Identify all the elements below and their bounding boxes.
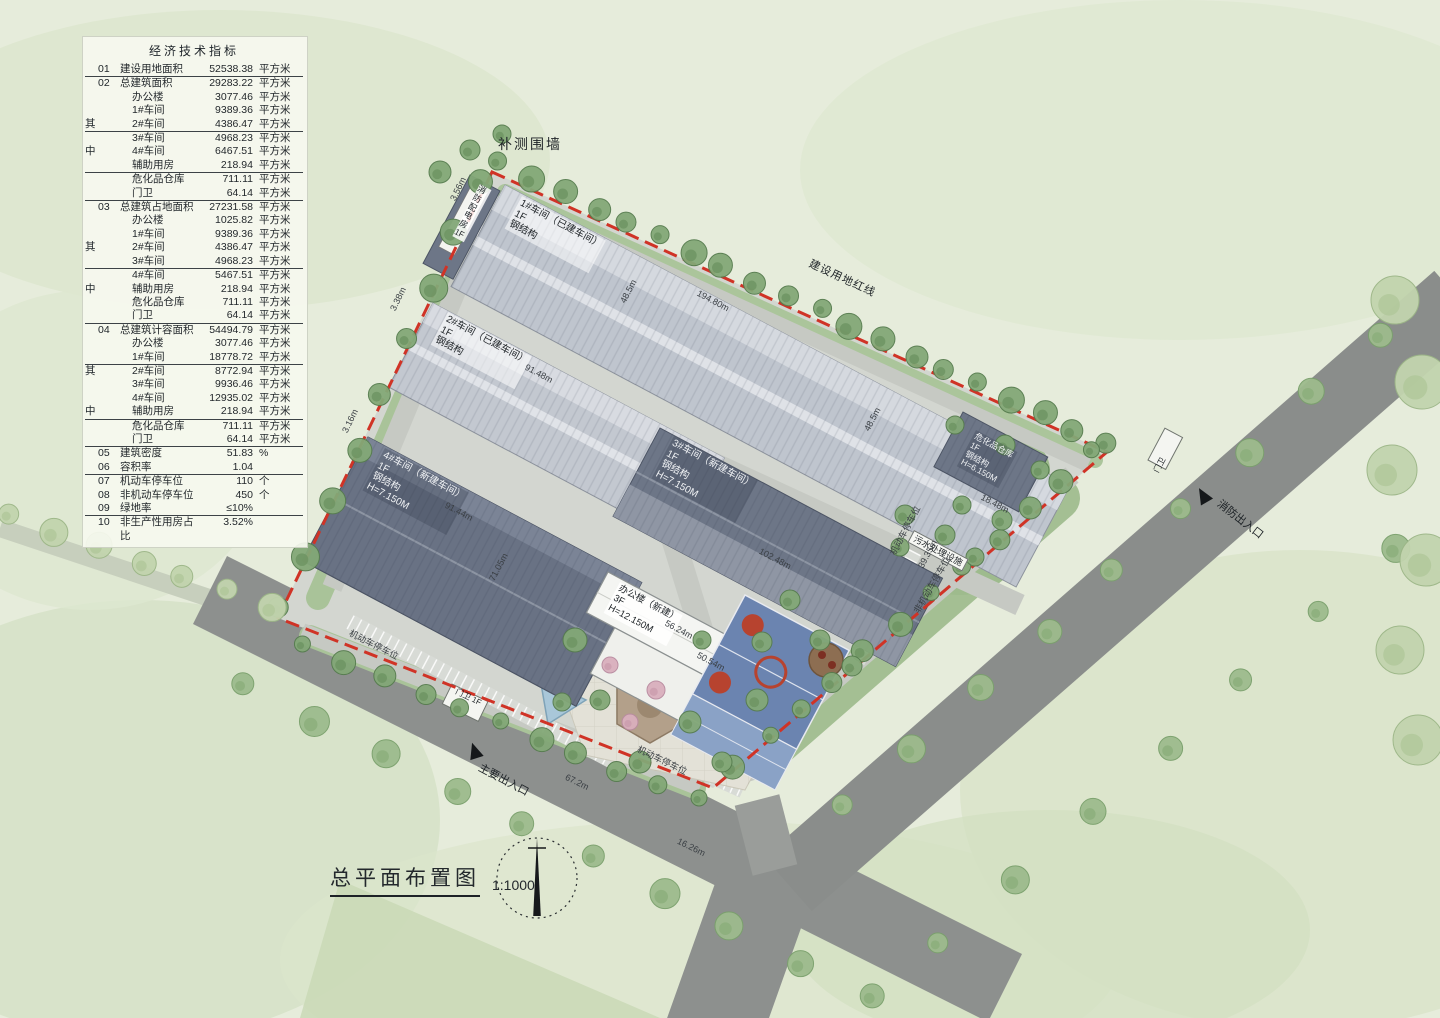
indicator-cell-val: 218.94	[197, 405, 259, 418]
indicator-cell-lab: 4#车间	[119, 145, 197, 158]
tree-texture	[1023, 505, 1033, 515]
indicator-cell-val: 51.83	[197, 447, 259, 460]
tree-texture	[586, 853, 596, 863]
indicator-row: 1#车间9389.36平方米	[85, 104, 303, 117]
indicator-row: 其2#车间4386.47平方米	[85, 118, 303, 132]
tree-texture	[813, 638, 822, 647]
tree-texture	[936, 367, 945, 376]
indicator-row: 02总建筑面积29283.22平方米	[85, 77, 303, 90]
tree-texture	[593, 698, 602, 707]
tree-texture	[712, 262, 723, 273]
tree-texture	[765, 733, 772, 740]
indicator-cell-val: 711.11	[197, 420, 259, 433]
indicator-cell-val: 12935.02	[197, 392, 259, 405]
indicator-cell-val: 4386.47	[197, 118, 259, 131]
tree-texture	[419, 692, 428, 701]
indicator-row: 3#车间4968.23平方米	[85, 255, 303, 269]
indicator-cell-lab: 辅助用房	[119, 283, 197, 296]
tree-texture	[556, 700, 564, 708]
indicator-cell-lab: 2#车间	[119, 118, 197, 131]
indicator-cell-lab: 3#车间	[119, 255, 197, 268]
tree-texture	[969, 555, 977, 563]
indicator-cell-no: 02	[98, 77, 119, 90]
indicator-cell-lab: 办公楼	[119, 91, 197, 104]
tree-texture	[1401, 734, 1424, 757]
indicator-row: 10非生产性用房占比3.52%	[85, 516, 303, 543]
indicator-row: 4#车间5467.51平方米	[85, 269, 303, 282]
tree-texture	[931, 940, 940, 949]
tree-texture	[1240, 449, 1253, 462]
indicator-cell-no: 10	[98, 516, 119, 529]
indicator-row: 06容积率1.04	[85, 461, 303, 475]
indicator-cell-no: 03	[98, 201, 119, 214]
tree-texture	[1006, 876, 1019, 889]
indicator-row: 1#车间18778.72平方米	[85, 351, 303, 365]
indicator-cell-lab: 1#车间	[119, 351, 197, 364]
tree-texture	[1086, 448, 1093, 455]
indicator-row: 04总建筑计容面积54494.79平方米	[85, 324, 303, 337]
indicator-cell-val: 64.14	[197, 433, 259, 446]
tree-texture	[592, 207, 602, 217]
indicator-cell-lab: 2#车间	[119, 365, 197, 378]
tree-texture	[652, 782, 660, 790]
tree-texture	[892, 621, 903, 632]
tree-texture	[971, 380, 979, 388]
tree-texture	[747, 281, 757, 291]
indicator-cell-no: 06	[98, 461, 119, 474]
tree-texture	[840, 323, 852, 335]
tree-texture	[304, 718, 318, 732]
indicator-cell-val: 64.14	[197, 187, 259, 200]
tree-texture	[1378, 294, 1400, 316]
indicator-row: 门卫64.14平方米	[85, 187, 303, 201]
indicator-row: 危化品仓库711.11平方米	[85, 420, 303, 433]
tree-texture	[2, 512, 11, 521]
indicator-cell-lab: 辅助用房	[119, 159, 197, 172]
tree-texture	[522, 176, 534, 188]
indicator-cell-lab: 总建筑计容面积	[119, 324, 197, 337]
indicator-cell-val: 64.14	[197, 309, 259, 322]
indicator-cell-lab: 非生产性用房占比	[119, 516, 197, 543]
indicator-cell-unit: 平方米	[259, 337, 303, 350]
tree-texture	[715, 760, 724, 769]
tree-texture	[1311, 609, 1320, 618]
indicator-cell-unit: 平方米	[259, 378, 303, 391]
indicator-cell-val: 4386.47	[197, 241, 259, 254]
tree-texture	[1104, 567, 1114, 577]
indicator-table-rows: 01建设用地面积52538.38平方米02总建筑面积29283.22平方米办公楼…	[85, 63, 303, 543]
indicator-cell-unit: 平方米	[259, 214, 303, 227]
indicator-cell-val: 4968.23	[197, 255, 259, 268]
indicator-cell-val: 218.94	[197, 159, 259, 172]
tree-texture	[424, 285, 437, 298]
tree-texture	[372, 392, 382, 402]
indicator-cell-unit: 平方米	[259, 351, 303, 364]
indicator-row: 中辅助用房218.94平方米	[85, 283, 303, 296]
indicator-cell-grp: 其	[85, 241, 98, 254]
indicator-cell-unit: 平方米	[259, 433, 303, 446]
indicator-row: 办公楼3077.46平方米	[85, 91, 303, 104]
indicator-cell-grp: 其	[85, 365, 98, 378]
indicator-row: 3#车间9936.46平方米	[85, 378, 303, 391]
indicator-cell-lab: 危化品仓库	[119, 420, 197, 433]
indicator-cell-val: 4968.23	[197, 132, 259, 145]
tree-texture	[1162, 745, 1173, 756]
tree-texture	[749, 697, 759, 707]
indicator-cell-lab: 门卫	[119, 309, 197, 322]
indicator-row: 门卫64.14平方米	[85, 309, 303, 323]
indicator-cell-lab: 3#车间	[119, 132, 197, 145]
tree-texture	[624, 720, 631, 727]
indicator-cell-unit: 平方米	[259, 255, 303, 268]
indicator-cell-unit: 平方米	[259, 296, 303, 309]
drawing-title-block: 总平面布置图 1:1000	[330, 862, 535, 897]
tree-texture	[1383, 644, 1405, 666]
drawing-scale: 1:1000	[492, 877, 535, 897]
tree-texture	[568, 750, 578, 760]
indicator-cell-unit: 平方米	[259, 63, 303, 76]
tree-texture	[604, 663, 611, 670]
indicator-cell-no: 01	[98, 63, 119, 76]
indicator-row: 中4#车间6467.51平方米	[85, 145, 303, 158]
indicator-cell-unit: 平方米	[259, 420, 303, 433]
indicator-cell-unit: 平方米	[259, 187, 303, 200]
indicator-cell-no: 08	[98, 489, 119, 502]
indicator-row: 办公楼3077.46平方米	[85, 337, 303, 350]
indicator-row: 4#车间12935.02平方米	[85, 392, 303, 405]
indicator-cell-val: 711.11	[197, 173, 259, 186]
indicator-row: 危化品仓库711.11平方米	[85, 173, 303, 186]
indicator-row: 其2#车间4386.47平方米	[85, 241, 303, 254]
tree-texture	[654, 890, 668, 904]
indicator-cell-lab: 门卫	[119, 187, 197, 200]
tree-texture	[993, 537, 1002, 546]
tree-texture	[174, 574, 184, 584]
tree-texture	[432, 169, 442, 179]
indicator-cell-grp: 其	[85, 118, 98, 131]
tree-texture	[654, 232, 662, 240]
tree-texture	[1099, 441, 1108, 450]
indicator-cell-no: 09	[98, 502, 119, 515]
indicator-cell-val: 6467.51	[197, 145, 259, 158]
indicator-row: 危化品仓库711.11平方米	[85, 296, 303, 309]
drawing-title: 总平面布置图	[330, 862, 480, 897]
indicator-cell-lab: 4#车间	[119, 269, 197, 282]
indicator-cell-no: 04	[98, 324, 119, 337]
tree-texture	[1002, 397, 1014, 409]
tree-texture	[449, 788, 461, 800]
tree-texture	[795, 707, 803, 715]
indicator-cell-val: 9936.46	[197, 378, 259, 391]
tree-texture	[495, 719, 502, 726]
tree-texture	[463, 148, 472, 157]
indicator-cell-unit: 平方米	[259, 241, 303, 254]
tree-texture	[632, 759, 642, 769]
indicator-row: 门卫64.14平方米	[85, 433, 303, 447]
tree-texture	[845, 664, 854, 673]
indicator-cell-lab: 2#车间	[119, 241, 197, 254]
indicator-cell-lab: 容积率	[119, 461, 197, 474]
tree-texture	[567, 637, 578, 648]
tree-texture	[682, 719, 692, 729]
indicator-cell-grp: 中	[85, 405, 98, 418]
indicator-cell-unit: 个	[259, 475, 303, 488]
tree-texture	[1372, 332, 1383, 343]
indicator-cell-lab: 总建筑占地面积	[119, 201, 197, 214]
tree-texture	[619, 220, 628, 229]
indicator-cell-unit: 平方米	[259, 145, 303, 158]
indicator-row: 07机动车停车位110个	[85, 475, 303, 488]
indicator-cell-unit: 平方米	[259, 173, 303, 186]
tree-texture	[1037, 410, 1048, 421]
tree-texture	[1233, 677, 1243, 687]
indicator-cell-unit: 平方米	[259, 324, 303, 337]
indicator-cell-unit: 平方米	[259, 132, 303, 145]
indicator-cell-unit: 平方米	[259, 392, 303, 405]
indicator-cell-val: 110	[197, 475, 259, 488]
indicator-cell-lab: 非机动车停车位	[119, 489, 197, 502]
tree-texture	[693, 796, 700, 803]
tree-texture	[949, 423, 957, 431]
indicator-cell-val: 52538.38	[197, 63, 259, 76]
tree-texture	[220, 587, 229, 596]
tree-texture	[1041, 628, 1052, 639]
indicator-cell-lab: 3#车间	[119, 378, 197, 391]
tree-texture	[44, 529, 57, 542]
indicator-cell-unit: 平方米	[259, 104, 303, 117]
indicator-cell-val: 711.11	[197, 296, 259, 309]
indicator-row: 办公楼1025.82平方米	[85, 214, 303, 227]
tree-texture	[696, 638, 704, 646]
tree-texture	[902, 745, 915, 758]
tree-texture	[1084, 808, 1096, 820]
indicator-cell-val: 218.94	[197, 283, 259, 296]
indicator-cell-lab: 机动车停车位	[119, 475, 197, 488]
indicator-cell-lab: 1#车间	[119, 228, 197, 241]
indicator-row: 08非机动车停车位450个	[85, 489, 303, 502]
indicator-cell-lab: 危化品仓库	[119, 173, 197, 186]
tree-texture	[864, 993, 875, 1004]
tree-texture	[1174, 506, 1183, 515]
tree-texture	[324, 498, 336, 510]
indicator-cell-unit: %	[259, 447, 303, 460]
indicator-cell-unit: 平方米	[259, 118, 303, 131]
tree-texture	[296, 553, 309, 566]
indicator-cell-lab: 门卫	[119, 433, 197, 446]
tree-texture	[1375, 464, 1398, 487]
indicator-cell-val: 27231.58	[197, 201, 259, 214]
indicator-cell-lab: 办公楼	[119, 214, 197, 227]
indicator-table: 经济技术指标 01建设用地面积52538.38平方米02总建筑面积29283.2…	[82, 36, 308, 548]
indicator-cell-no: 05	[98, 447, 119, 460]
indicator-cell-unit: 平方米	[259, 365, 303, 378]
tree-texture	[995, 518, 1004, 527]
tree-texture	[262, 604, 275, 617]
indicator-cell-val: 54494.79	[197, 324, 259, 337]
indicator-row: 中辅助用房218.94平方米	[85, 405, 303, 419]
tree-texture	[351, 447, 362, 458]
tree-texture	[1053, 479, 1064, 490]
indicator-cell-unit: 平方米	[259, 269, 303, 282]
indicator-cell-val: 3077.46	[197, 91, 259, 104]
tree-texture	[782, 293, 791, 302]
indicator-cell-lab: 4#车间	[119, 392, 197, 405]
indicator-row: 其2#车间8772.94平方米	[85, 365, 303, 378]
indicator-cell-lab: 总建筑面积	[119, 77, 197, 90]
tree-texture	[791, 960, 803, 972]
tree-texture	[719, 922, 732, 935]
tree-texture	[491, 159, 499, 167]
tree-texture	[377, 673, 387, 683]
tree-texture	[235, 681, 245, 691]
indicator-cell-unit: 平方米	[259, 309, 303, 322]
indicator-row: 3#车间4968.23平方米	[85, 132, 303, 145]
indicator-cell-val: 450	[197, 489, 259, 502]
indicator-cell-unit: 个	[259, 489, 303, 502]
tree-texture	[956, 503, 964, 511]
indicator-cell-unit: 平方米	[259, 159, 303, 172]
indicator-cell-val: 3.52%	[197, 516, 259, 529]
tree-texture	[685, 249, 697, 261]
indicator-cell-val: 9389.36	[197, 104, 259, 117]
tree-texture	[1064, 428, 1074, 438]
wall-label: 补测围墙	[498, 136, 562, 152]
indicator-cell-lab: 1#车间	[119, 104, 197, 117]
indicator-cell-unit: 平方米	[259, 283, 303, 296]
indicator-cell-lab: 建设用地面积	[119, 63, 197, 76]
tree-texture	[1302, 388, 1314, 400]
indicator-cell-unit: 平方米	[259, 91, 303, 104]
indicator-cell-unit: 平方米	[259, 405, 303, 418]
tree-texture	[1034, 468, 1042, 476]
tree-texture	[557, 189, 568, 200]
indicator-cell-lab: 建筑密度	[119, 447, 197, 460]
tree-texture	[816, 306, 824, 314]
indicator-cell-lab: 绿地率	[119, 502, 197, 515]
indicator-cell-grp: 中	[85, 145, 98, 158]
tree-texture	[400, 336, 409, 345]
indicator-cell-lab: 辅助用房	[119, 405, 197, 418]
tree-texture	[610, 769, 619, 778]
tree-texture	[136, 561, 147, 572]
tree-texture	[938, 533, 947, 542]
indicator-cell-val: 29283.22	[197, 77, 259, 90]
indicator-cell-val: 9389.36	[197, 228, 259, 241]
road-site-access	[757, 800, 775, 870]
indicator-row: 辅助用房218.94平方米	[85, 159, 303, 173]
indicator-cell-no: 07	[98, 475, 119, 488]
indicator-cell-lab: 危化品仓库	[119, 296, 197, 309]
tree-texture	[453, 705, 461, 713]
indicator-table-title: 经济技术指标	[85, 39, 303, 63]
tree-texture	[1386, 545, 1399, 558]
tree-texture	[825, 680, 834, 689]
indicator-cell-val: 3077.46	[197, 337, 259, 350]
indicator-row: 05建筑密度51.83%	[85, 447, 303, 460]
tree-texture	[1403, 375, 1427, 399]
indicator-cell-lab: 办公楼	[119, 337, 197, 350]
indicator-row: 1#车间9389.36平方米	[85, 228, 303, 241]
indicator-cell-val: 1025.82	[197, 214, 259, 227]
tree-texture	[376, 750, 389, 763]
tree-texture	[972, 684, 984, 696]
tree-texture	[513, 821, 524, 832]
tree-texture	[909, 354, 919, 364]
tree-texture	[297, 642, 304, 649]
indicator-cell-unit: 平方米	[259, 201, 303, 214]
indicator-cell-val: 8772.94	[197, 365, 259, 378]
tree-texture	[534, 737, 545, 748]
indicator-cell-val: 5467.51	[197, 269, 259, 282]
indicator-cell-unit: 平方米	[259, 77, 303, 90]
indicator-row: 03总建筑占地面积27231.58平方米	[85, 201, 303, 214]
site-plan-canvas: 补测围墙 建设用地红线 1#车间（已建车间） 1F 钢结构 2#车间（已建车间）…	[0, 0, 1440, 1018]
indicator-cell-grp: 中	[85, 283, 98, 296]
tree-texture	[783, 598, 792, 607]
indicator-row: 09绿地率≤10%	[85, 502, 303, 516]
tree-texture	[755, 640, 764, 649]
tree-texture	[875, 336, 886, 347]
indicator-cell-val: ≤10%	[197, 502, 259, 515]
tree-texture	[835, 802, 844, 811]
indicator-cell-val: 1.04	[197, 461, 259, 474]
indicator-cell-unit: 平方米	[259, 228, 303, 241]
tree-texture	[1408, 554, 1431, 577]
tree-texture	[335, 660, 346, 671]
tree-texture	[650, 688, 658, 696]
indicator-cell-val: 18778.72	[197, 351, 259, 364]
indicator-row: 01建设用地面积52538.38平方米	[85, 63, 303, 77]
